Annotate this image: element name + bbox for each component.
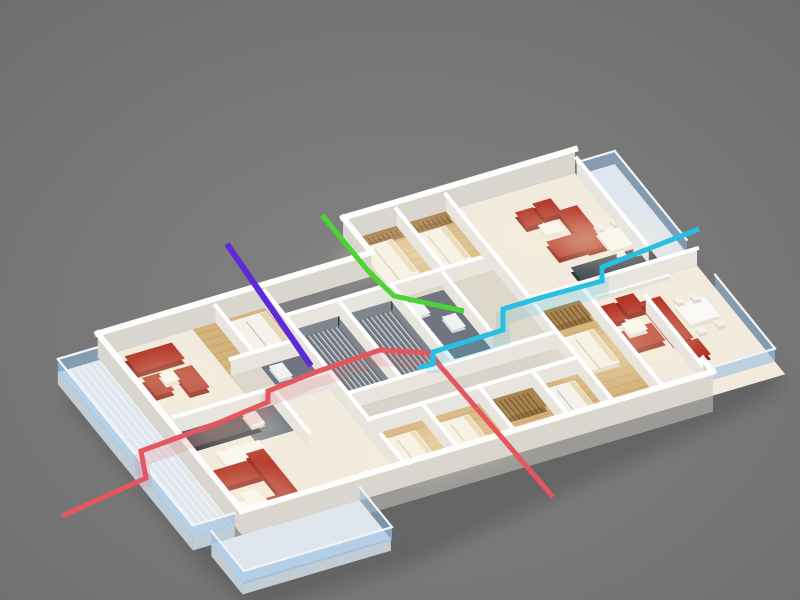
floorplan-render-viewport xyxy=(0,0,800,600)
floorplan-render xyxy=(0,0,800,600)
